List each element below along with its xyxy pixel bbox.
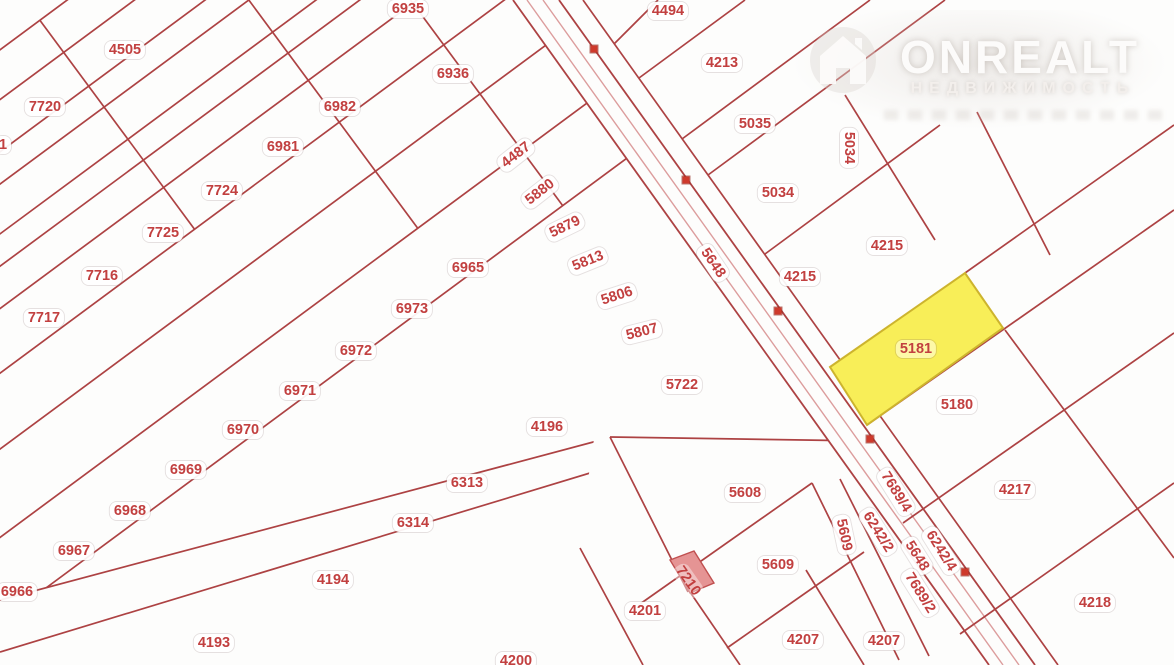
- street-band: [0, 437, 648, 652]
- parcel-label-4193[interactable]: 4193: [194, 634, 234, 652]
- parcel-label-6313[interactable]: 6313: [447, 474, 487, 492]
- parcel-label-5034[interactable]: 5034: [758, 184, 798, 202]
- parcel-label-5035[interactable]: 5035: [735, 115, 775, 133]
- parcel-label-5180[interactable]: 5180: [937, 396, 977, 414]
- road-node-marker: [775, 308, 782, 315]
- watermark-dots: [884, 110, 1164, 120]
- parcel-label-6314[interactable]: 6314: [393, 514, 433, 532]
- parcel-label-6982[interactable]: 6982: [320, 98, 360, 116]
- road-node-marker: [962, 569, 969, 576]
- parcel-label-4194[interactable]: 4194: [313, 571, 353, 589]
- brand-name: ONREALT: [870, 30, 1170, 84]
- parcel-label-6936[interactable]: 6936: [433, 65, 473, 83]
- parcel-label-4213[interactable]: 4213: [702, 54, 742, 72]
- parcel-label-4200[interactable]: 4200: [496, 652, 536, 665]
- parcel-label-6968[interactable]: 6968: [110, 502, 150, 520]
- parcel-label-6981[interactable]: 6981: [263, 138, 303, 156]
- parcel-label-7724[interactable]: 7724: [202, 182, 242, 200]
- parcel-label-4215[interactable]: 4215: [780, 268, 820, 286]
- parcel-label-5722[interactable]: 5722: [662, 376, 702, 394]
- parcel-label-4215[interactable]: 4215: [867, 237, 907, 255]
- parcel-label-7720[interactable]: 7720: [25, 98, 65, 116]
- brand-tagline: НЕДВИЖИМОСТЬ: [878, 80, 1168, 98]
- parcel-label-7717[interactable]: 7717: [24, 309, 64, 327]
- parcel-label-4207[interactable]: 4207: [783, 631, 823, 649]
- parcel-label-4201[interactable]: 4201: [625, 602, 665, 620]
- parcel-label-6966[interactable]: 6966: [0, 583, 37, 601]
- parcel-label-7725[interactable]: 7725: [143, 224, 183, 242]
- road-node-marker: [867, 436, 874, 443]
- parcel-label-4207[interactable]: 4207: [864, 632, 904, 650]
- parcel-label-7716[interactable]: 7716: [82, 267, 122, 285]
- road-node-marker: [591, 46, 598, 53]
- parcel-label-5609[interactable]: 5609: [758, 556, 798, 574]
- parcel-label-4196[interactable]: 4196: [527, 418, 567, 436]
- house-icon: [808, 24, 878, 102]
- parcel-label-4505[interactable]: 4505: [105, 41, 145, 59]
- parcel-label-6972[interactable]: 6972: [336, 342, 376, 360]
- parcel-label-6965[interactable]: 6965: [448, 259, 488, 277]
- cadastral-map: 1450577206935693669826981772477257716771…: [0, 0, 1174, 665]
- parcel-label-1[interactable]: 1: [0, 136, 11, 154]
- brand-logo: ONREALT НЕДВИЖИМОСТЬ: [800, 18, 1170, 128]
- parcel-label-6935[interactable]: 6935: [388, 0, 428, 18]
- parcel-label-4217[interactable]: 4217: [995, 481, 1035, 499]
- parcel-label-6971[interactable]: 6971: [280, 382, 320, 400]
- parcel-label-5181[interactable]: 5181: [896, 340, 936, 358]
- parcel-label-6969[interactable]: 6969: [166, 461, 206, 479]
- parcel-label-6973[interactable]: 6973: [392, 300, 432, 318]
- parcel-label-5034[interactable]: 5034: [840, 128, 858, 168]
- road-node-marker: [683, 177, 690, 184]
- parcel-label-6967[interactable]: 6967: [54, 542, 94, 560]
- parcel-label-4494[interactable]: 4494: [648, 2, 688, 20]
- parcel-label-4218[interactable]: 4218: [1075, 594, 1115, 612]
- parcel-label-6970[interactable]: 6970: [223, 421, 263, 439]
- parcel-label-5608[interactable]: 5608: [725, 484, 765, 502]
